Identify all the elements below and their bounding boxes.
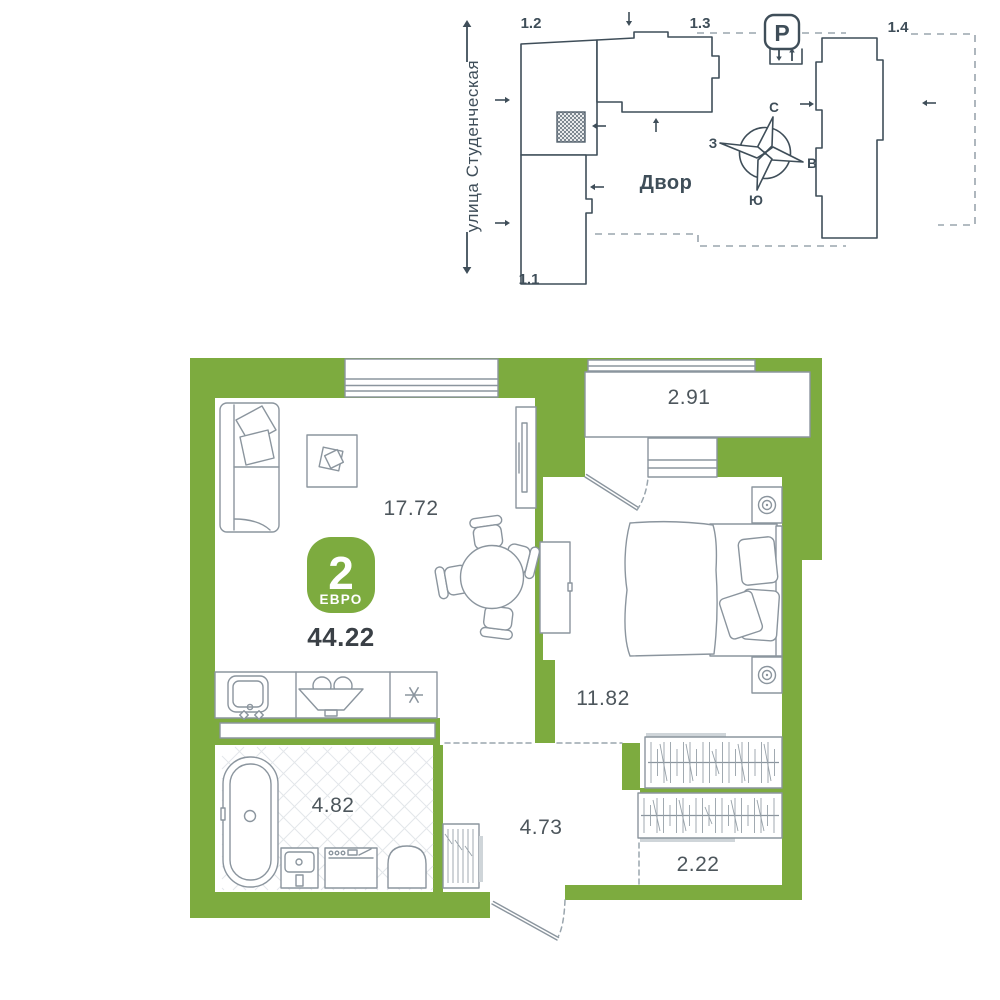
- compass-south-label: Ю: [749, 193, 763, 208]
- compass-east-label: В: [807, 156, 817, 171]
- compass-icon: С Ю З В: [709, 100, 817, 208]
- building-1-2-label: 1.2: [521, 15, 542, 32]
- building-1-4: [816, 38, 883, 238]
- floor-plan-page: улица Студенческая 1.2 1.3 1.4: [0, 0, 1000, 1000]
- building-1-1-label: 1.1: [519, 271, 540, 288]
- building-1-1: [521, 155, 592, 284]
- total-area-label: 44.22: [307, 622, 375, 652]
- wardrobe-area-label: 2.22: [677, 853, 720, 876]
- living-kitchen-area-label: 17.72: [383, 497, 438, 520]
- badge-layout-type: ЕВРО: [320, 592, 363, 607]
- bed-blanket: [625, 522, 717, 656]
- parking-icon: P: [765, 15, 802, 64]
- ventilation-shaft: [220, 723, 435, 738]
- wardrobe-unit: [638, 793, 782, 838]
- nightstand: [752, 657, 782, 693]
- wardrobe-unit: [645, 737, 782, 788]
- tv-unit: [516, 407, 536, 508]
- loggia-door: [585, 475, 648, 511]
- building-1-3: [597, 32, 719, 112]
- bedroom-loggia-window-sill: [648, 438, 717, 477]
- bathroom-sink: [281, 848, 318, 888]
- site-plan: улица Студенческая 1.2 1.3 1.4: [463, 12, 975, 288]
- coffee-table: [307, 435, 357, 487]
- dining-chair: [480, 605, 516, 640]
- sofa-pillow: [240, 430, 274, 465]
- apartment-floor-plan: 17.72 2.91 11.82 4.82 4.73 2.22 2 ЕВРО 4…: [190, 358, 822, 940]
- building-1-3-label: 1.3: [690, 15, 711, 32]
- street-label: улица Студенческая: [463, 60, 482, 233]
- apartment-location-marker-icon: [557, 112, 585, 142]
- compass-north-label: С: [769, 100, 779, 115]
- dining-set: [434, 515, 540, 640]
- toilet: [388, 846, 426, 888]
- dining-chair: [469, 515, 505, 550]
- washing-machine: [325, 848, 377, 888]
- bathtub: [221, 757, 278, 887]
- bed: [625, 522, 782, 656]
- plan-canvas: улица Студенческая 1.2 1.3 1.4: [0, 0, 1000, 1000]
- bedroom-area-label: 11.82: [576, 687, 630, 710]
- parking-letter: P: [774, 20, 789, 46]
- bed-pillow: [738, 536, 779, 586]
- kitchen-counter: [215, 672, 437, 719]
- nightstand: [752, 487, 782, 523]
- loggia-area-label: 2.91: [668, 386, 711, 409]
- hallway-area-label: 4.73: [520, 816, 563, 839]
- hallway-coat-rack: [443, 824, 483, 888]
- apartment-type-badge: 2 ЕВРО: [307, 537, 375, 613]
- loggia-glazing-window: [588, 360, 755, 371]
- sofa: [220, 403, 279, 532]
- compass-west-label: З: [709, 136, 717, 151]
- entry-door: [492, 900, 565, 940]
- bathroom-area-label: 4.82: [312, 794, 355, 817]
- bedroom-dresser: [540, 542, 572, 633]
- living-room-window: [345, 359, 498, 397]
- dining-table: [461, 546, 524, 609]
- yard-label: Двор: [640, 172, 693, 194]
- building-1-4-label: 1.4: [888, 19, 910, 36]
